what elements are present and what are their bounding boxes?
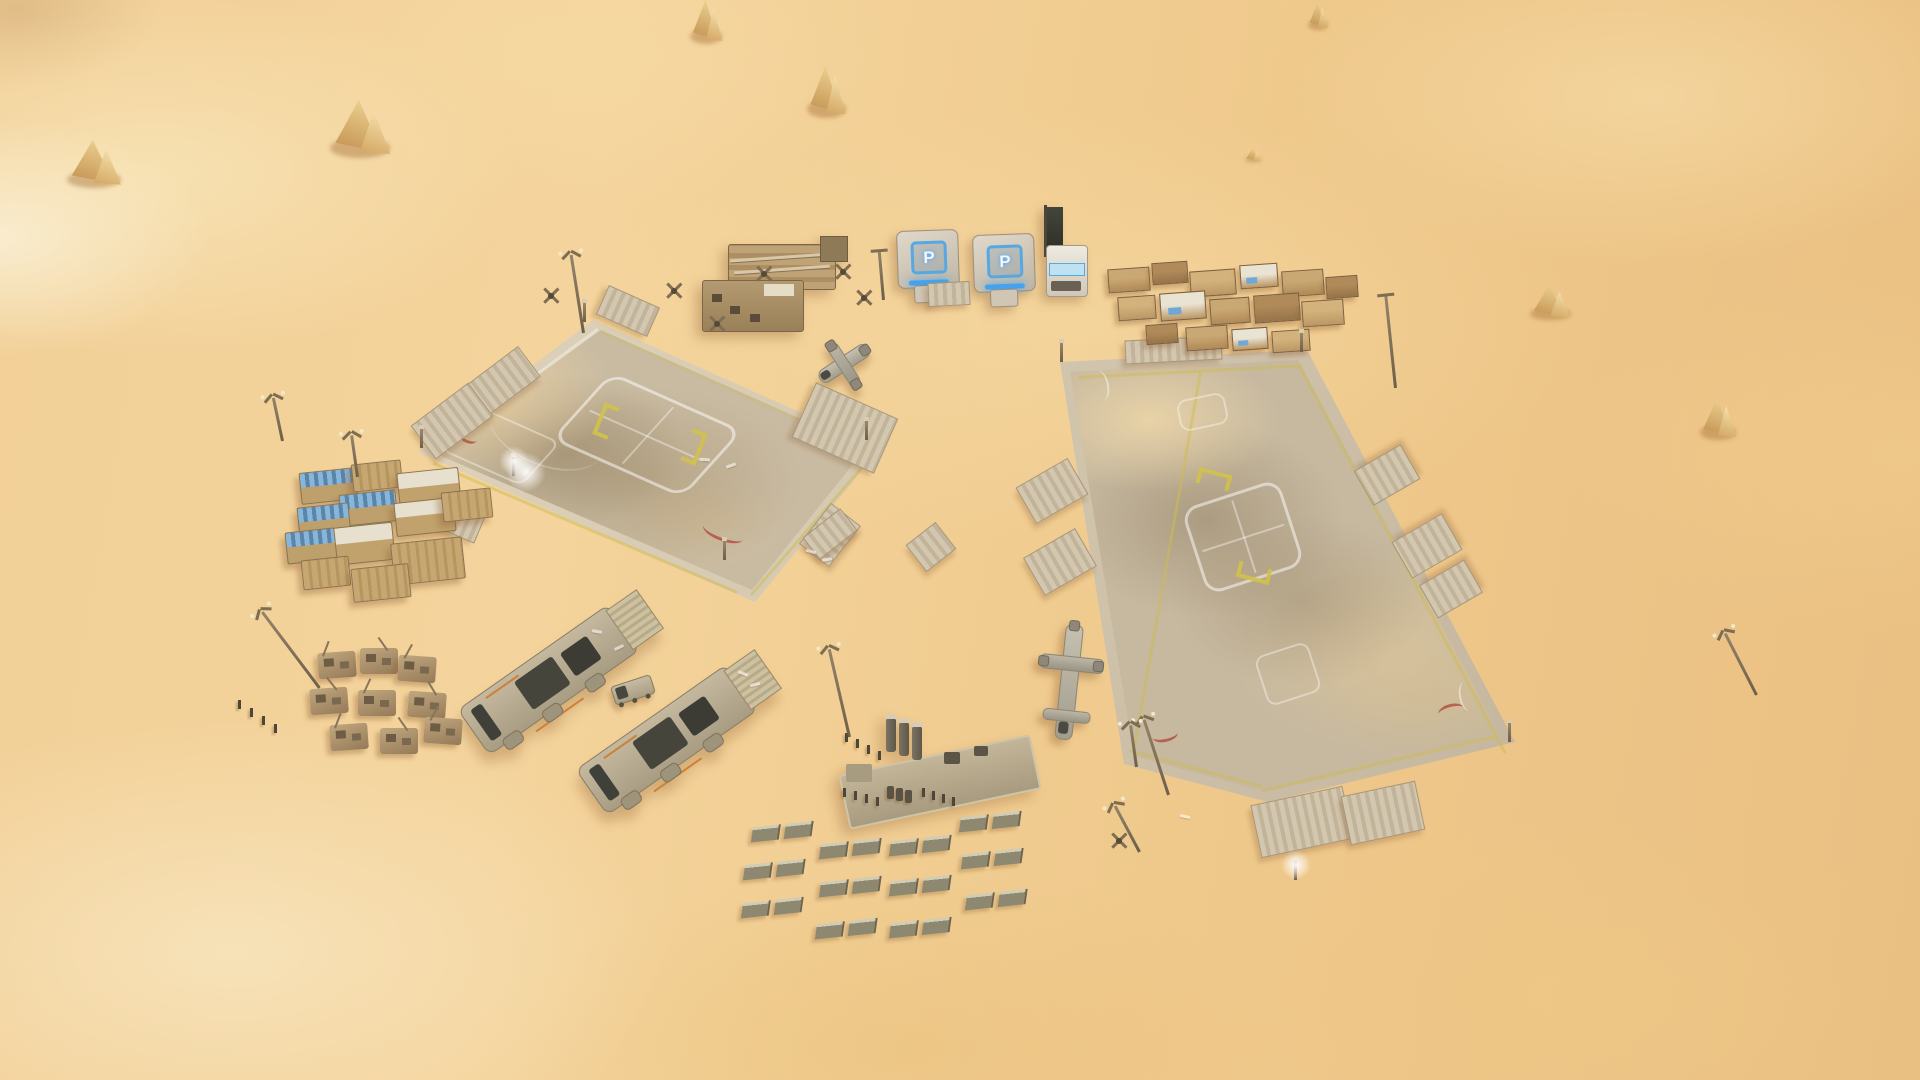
- settlement-building[interactable]: [1159, 290, 1207, 321]
- parking-letter: P: [999, 251, 1011, 271]
- settlement-building[interactable]: [1145, 323, 1178, 345]
- sand-contour: [1080, 980, 1604, 1080]
- settlement-building[interactable]: [1239, 263, 1279, 290]
- machinery-arm: [363, 678, 372, 693]
- landing-pad-left-rim[interactable]: [0, 0, 1920, 1080]
- solar-panel-pair[interactable]: [743, 859, 809, 886]
- machinery-arm: [378, 637, 389, 651]
- sand-contour: [360, 920, 824, 1080]
- drone-turret[interactable]: [1103, 825, 1134, 856]
- parking-pad-2[interactable]: P: [972, 233, 1036, 293]
- banner-kiosk[interactable]: [1038, 205, 1088, 297]
- machinery-detail: [380, 700, 389, 707]
- machinery-arm: [326, 677, 338, 691]
- dropship-cockpit: [1058, 721, 1069, 734]
- platform-cabin: [846, 764, 872, 782]
- cargo-container[interactable]: [393, 497, 456, 537]
- machinery-arm: [403, 644, 413, 659]
- machinery-detail: [420, 666, 429, 674]
- ramp: [428, 496, 486, 543]
- machinery-arm: [427, 681, 437, 696]
- machinery-detail: [366, 654, 376, 662]
- building-blue-panel: [1238, 340, 1249, 346]
- solar-panel-pair[interactable]: [965, 889, 1031, 916]
- cargo-container[interactable]: [296, 502, 351, 539]
- rock-formation: [330, 100, 397, 158]
- solar-panel-pair[interactable]: [819, 838, 885, 865]
- sand-streak: [28, 564, 332, 663]
- solar-panel-pair[interactable]: [889, 875, 955, 902]
- cargo-container[interactable]: [328, 522, 396, 566]
- infantry-figure[interactable]: [238, 700, 241, 709]
- sand-contour: [1390, 110, 1854, 284]
- landing-pad-left-surface[interactable]: [0, 0, 1920, 1080]
- light-pole: [878, 251, 885, 300]
- lamp-glare: [1281, 850, 1311, 880]
- sand-streak: [239, 808, 762, 1008]
- platform-deck: [838, 734, 1041, 830]
- solar-panel-pair[interactable]: [741, 897, 807, 924]
- debris: [822, 557, 832, 562]
- landing-pad-right-rim[interactable]: [0, 0, 1920, 1080]
- parking-pad-1[interactable]: P: [896, 229, 960, 289]
- machinery-unit[interactable]: [380, 728, 418, 754]
- machinery-detail: [332, 697, 341, 705]
- machinery-unit[interactable]: [397, 655, 437, 684]
- building-blue-panel: [1246, 277, 1257, 283]
- machinery-unit[interactable]: [309, 687, 349, 716]
- rock-formation: [1700, 398, 1740, 440]
- kiosk-door: [1051, 281, 1081, 291]
- cargo-container[interactable]: [338, 489, 398, 527]
- factory-white-roof: [764, 284, 794, 296]
- settlement-building[interactable]: [1231, 327, 1268, 351]
- machinery-detail: [352, 733, 361, 741]
- machinery-arm: [334, 713, 342, 729]
- machinery-detail: [404, 661, 415, 670]
- machinery-detail: [336, 730, 347, 739]
- machinery-arm: [322, 641, 330, 657]
- drone-turret[interactable]: [658, 275, 689, 306]
- corner-post: [865, 420, 868, 440]
- machinery-detail: [316, 694, 327, 703]
- light-pole: [570, 255, 585, 333]
- light-pole: [1114, 805, 1141, 852]
- machinery-detail: [414, 697, 425, 706]
- rock-formation: [1308, 2, 1330, 30]
- light-pole: [272, 398, 284, 442]
- ramp: [1023, 528, 1097, 596]
- settlement-building[interactable]: [1325, 275, 1358, 299]
- machinery-detail: [430, 702, 439, 710]
- solar-panel-pair[interactable]: [889, 917, 955, 944]
- sand-streak: [1653, 239, 1920, 411]
- machinery-unit[interactable]: [360, 648, 398, 674]
- parking-letter: P: [923, 247, 935, 267]
- platform-turret: [944, 752, 960, 764]
- sand-streak: [1559, 791, 1920, 1008]
- sand-streak: [479, 125, 901, 202]
- factory-building[interactable]: [700, 236, 860, 336]
- parking-sign: P: [910, 240, 947, 274]
- settlement-building[interactable]: [1151, 261, 1188, 285]
- rock-formation: [690, 0, 726, 44]
- sand-streak: [848, 979, 1453, 1080]
- corner-post: [420, 428, 423, 448]
- debris: [806, 549, 816, 554]
- machinery-unit[interactable]: [329, 723, 369, 752]
- settlement-building[interactable]: [1185, 325, 1229, 352]
- corner-post: [583, 302, 586, 322]
- cargo-container[interactable]: [441, 487, 494, 522]
- settlement-building[interactable]: [1209, 297, 1251, 326]
- solar-panel-pair[interactable]: [889, 835, 955, 862]
- cargo-container[interactable]: [284, 527, 337, 564]
- solar-panel-pair[interactable]: [815, 918, 881, 945]
- building-blue-panel: [1168, 307, 1182, 314]
- sand-contour: [1640, 930, 1920, 1080]
- machinery-detail: [386, 734, 396, 742]
- parking-step: [914, 285, 943, 304]
- missile-tube: [886, 718, 896, 752]
- infantry-figure[interactable]: [262, 716, 265, 725]
- debris: [1180, 814, 1190, 819]
- cargo-container[interactable]: [390, 536, 466, 585]
- sand-streak: [1453, 429, 1868, 747]
- missile-tube: [912, 726, 922, 760]
- machinery-detail: [382, 658, 391, 665]
- corner-post: [1300, 332, 1303, 352]
- sand-streak: [1148, 154, 1672, 281]
- cargo-container[interactable]: [350, 563, 411, 603]
- sand-contour: [640, 40, 1064, 204]
- missile-platform[interactable]: [836, 708, 1046, 823]
- game-viewport[interactable]: P P: [0, 0, 1920, 1080]
- machinery-detail: [324, 658, 335, 667]
- light-pole: [261, 611, 321, 689]
- sand-contour: [260, 140, 624, 294]
- drone-turret[interactable]: [535, 280, 566, 311]
- cargo-container[interactable]: [298, 467, 358, 505]
- settlement-building[interactable]: [1301, 299, 1345, 328]
- settlement-building[interactable]: [1107, 267, 1151, 294]
- settlement-building[interactable]: [1117, 295, 1157, 322]
- cargo-container[interactable]: [301, 556, 352, 591]
- landing-pad-right-surface[interactable]: [0, 0, 1920, 1080]
- corner-post: [1294, 860, 1297, 880]
- settlement-building[interactable]: [1271, 329, 1310, 354]
- sand-streak: [59, 49, 321, 112]
- kiosk-window: [1049, 263, 1085, 276]
- machinery-detail: [430, 723, 441, 732]
- rock-formation: [67, 140, 127, 188]
- machinery-detail: [340, 661, 349, 669]
- solar-panel-pair[interactable]: [961, 848, 1027, 875]
- machinery-unit[interactable]: [358, 690, 396, 716]
- settlement-building[interactable]: [1253, 292, 1301, 323]
- solar-panel-pair[interactable]: [751, 821, 817, 848]
- corner-post: [1060, 342, 1063, 362]
- sand-streak: [698, 911, 1122, 1029]
- machinery-detail: [402, 738, 411, 745]
- machinery-detail: [446, 728, 455, 736]
- ramp: [906, 522, 957, 572]
- light-pole: [350, 435, 359, 477]
- missile-tube: [899, 722, 909, 756]
- settlement-building[interactable]: [1189, 268, 1237, 297]
- solar-panel-pair[interactable]: [819, 876, 885, 903]
- light-pole: [1724, 633, 1758, 696]
- machinery-arm: [429, 706, 439, 721]
- settlement-building[interactable]: [1281, 269, 1325, 298]
- rock-formation: [1530, 285, 1575, 320]
- rock-formation: [1245, 148, 1263, 162]
- light-pole: [1384, 295, 1397, 388]
- machinery-unit[interactable]: [407, 691, 447, 720]
- infantry-figure[interactable]: [274, 724, 277, 733]
- sand-contour: [140, 480, 444, 614]
- sand-contour: [1680, 460, 1920, 624]
- factory-tower: [820, 236, 848, 262]
- machinery-unit[interactable]: [423, 717, 463, 746]
- cargo-container[interactable]: [351, 459, 404, 492]
- parking-sign: P: [986, 244, 1023, 278]
- sand-streak: [979, 59, 1401, 125]
- machinery-arm: [398, 717, 409, 731]
- ramp: [1341, 781, 1426, 846]
- parking-step: [990, 289, 1019, 308]
- infantry-figure[interactable]: [250, 708, 253, 717]
- sand-streak: [118, 304, 502, 412]
- machinery-unit[interactable]: [317, 651, 357, 680]
- machinery-detail: [364, 696, 374, 704]
- platform-turret: [974, 746, 988, 756]
- rock-formation: [807, 66, 850, 118]
